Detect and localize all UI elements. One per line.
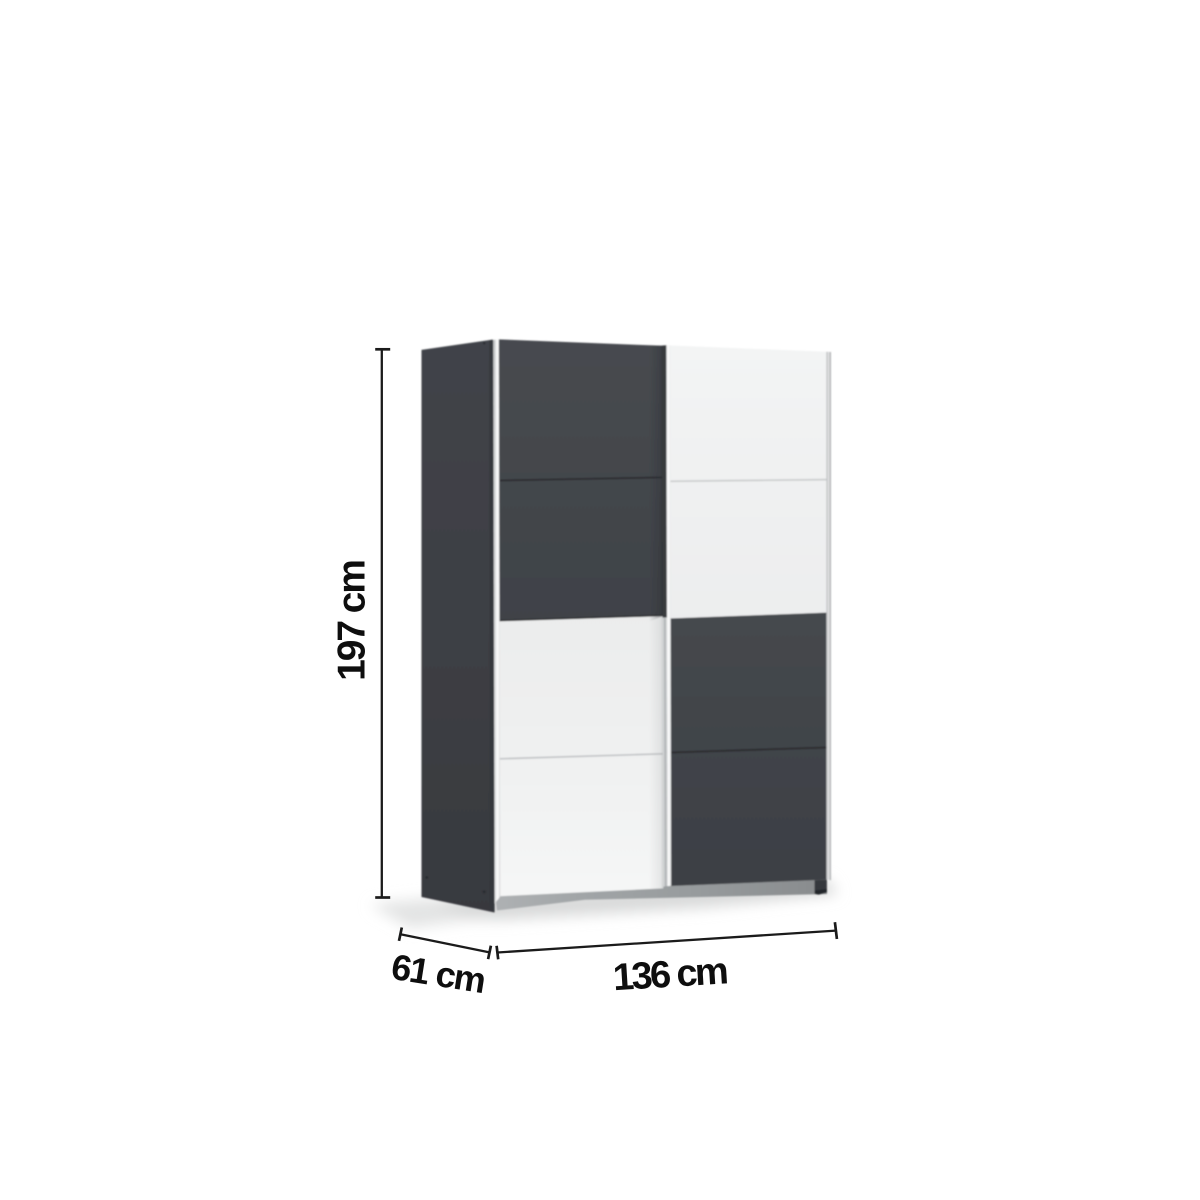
svg-text:197 cm: 197 cm (331, 561, 374, 681)
svg-text:136 cm: 136 cm (612, 950, 728, 999)
